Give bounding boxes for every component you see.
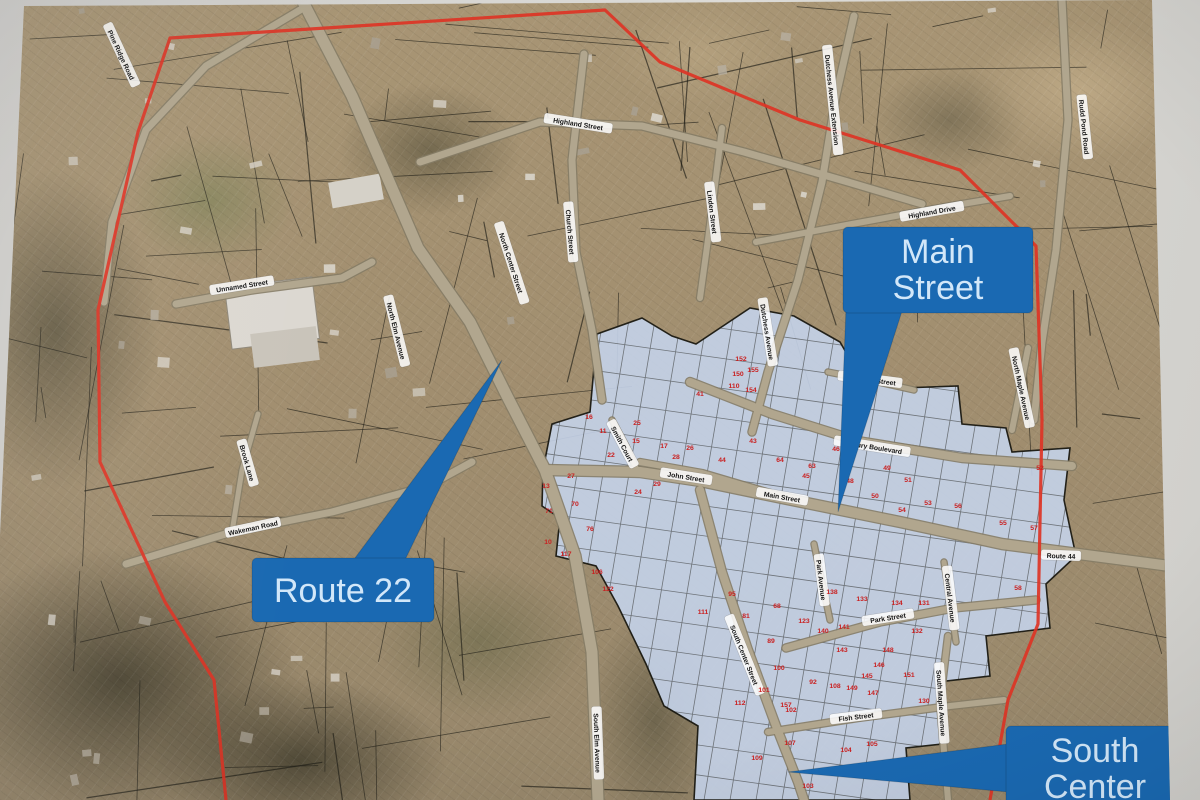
- parcel-number-70: 70: [571, 501, 579, 508]
- parcel-number-102: 102: [785, 707, 797, 714]
- parcel-number-95: 95: [728, 591, 736, 598]
- parcel-number-143: 143: [836, 647, 848, 654]
- street-label-route-44: Route 44: [1041, 549, 1082, 561]
- parcel-number-24: 24: [634, 489, 642, 496]
- parcel-number-134: 134: [891, 600, 903, 607]
- parcel-number-64: 64: [776, 457, 784, 464]
- map-svg: Pine Ridge RoadUnnamed StreetHighland St…: [0, 0, 1200, 800]
- parcel-number-103: 103: [802, 783, 814, 790]
- parcel-number-45: 45: [802, 473, 810, 480]
- parcel-number-146: 146: [873, 662, 885, 669]
- parcel-number-58: 58: [1014, 585, 1022, 592]
- industrial-building: [328, 174, 384, 209]
- callout-text-south-center-1: Center: [1044, 768, 1146, 800]
- parcel-number-55: 55: [999, 520, 1007, 527]
- parcel-number-46: 46: [832, 446, 840, 453]
- map-sheet: Pine Ridge RoadUnnamed StreetHighland St…: [0, 0, 1200, 800]
- parcel-number-16: 16: [585, 414, 593, 421]
- parcel-number-100: 100: [773, 665, 785, 672]
- parcel-number-101: 101: [758, 687, 770, 694]
- parcel-number-49: 49: [883, 465, 891, 472]
- parcel-number-152: 152: [735, 356, 747, 363]
- street-label-south-elm-avenue: South Elm Avenue: [591, 706, 604, 780]
- parcel-number-22: 22: [607, 452, 615, 459]
- parcel-number-68: 68: [773, 603, 781, 610]
- callout-text-main-street-1: Street: [893, 269, 984, 307]
- parcel-number-57: 57: [1030, 525, 1038, 532]
- parcel-number-15: 15: [632, 438, 640, 445]
- parcel-number-89: 89: [767, 638, 775, 645]
- parcel-number-25: 25: [633, 420, 641, 427]
- parcel-number-111: 111: [698, 609, 709, 616]
- callout-text-main-street-0: Main: [901, 233, 975, 271]
- parcel-number-154: 154: [745, 387, 757, 394]
- parcel-number-44: 44: [718, 457, 726, 464]
- parcel-number-150: 150: [732, 371, 744, 378]
- parcel-number-27: 27: [567, 473, 575, 480]
- parcel-number-106: 106: [591, 569, 603, 576]
- parcel-number-117: 117: [561, 551, 572, 558]
- parcel-number-104: 104: [840, 747, 852, 754]
- parcel-number-107: 107: [784, 740, 796, 747]
- parcel-number-43: 43: [749, 438, 757, 445]
- parcel-number-92: 92: [809, 679, 817, 686]
- parcel-number-145: 145: [861, 673, 873, 680]
- svg-text:Pine Ridge Road: Pine Ridge Road: [106, 29, 135, 81]
- parcel-number-151: 151: [903, 672, 915, 679]
- parcel-number-51: 51: [904, 477, 912, 484]
- parcel-number-29: 29: [653, 481, 661, 488]
- parcel-number-105: 105: [866, 741, 878, 748]
- road-church-street: [572, 54, 602, 400]
- street-label-north-elm-avenue: North Elm Avenue: [383, 294, 411, 368]
- parcel-number-109: 109: [751, 755, 763, 762]
- parcel-number-108: 108: [829, 683, 841, 690]
- callout-text-south-center-0: South: [1051, 732, 1140, 770]
- svg-text:Route 44: Route 44: [1046, 553, 1075, 561]
- parcel-number-131: 131: [918, 600, 930, 607]
- parcel-number-140: 140: [817, 628, 829, 635]
- parcel-number-56: 56: [954, 503, 962, 510]
- parcel-number-141: 141: [838, 624, 850, 631]
- parcel-number-148: 148: [882, 647, 894, 654]
- parcel-number-52: 52: [1036, 465, 1044, 472]
- street-label-north-center-street: North Center Street: [493, 220, 530, 305]
- parcel-number-76: 76: [586, 526, 594, 533]
- parcel-number-13: 13: [542, 483, 550, 490]
- parcel-number-112: 112: [735, 700, 746, 707]
- parcel-number-11: 11: [599, 428, 606, 435]
- parcel-number-28: 28: [672, 454, 680, 461]
- parcel-number-63: 63: [808, 463, 816, 470]
- parcel-number-138: 138: [826, 589, 838, 596]
- parcel-number-155: 155: [747, 367, 759, 374]
- parcel-number-122: 122: [602, 586, 614, 593]
- photo-of-parcel-map: Pine Ridge RoadUnnamed StreetHighland St…: [0, 0, 1200, 800]
- parcel-number-50: 50: [871, 493, 879, 500]
- parcel-number-17: 17: [660, 443, 668, 450]
- callout-text-route-22-0: Route 22: [274, 572, 412, 610]
- parcel-number-10: 10: [544, 539, 552, 546]
- parcel-number-123: 123: [798, 618, 810, 625]
- parcel-number-54: 54: [898, 507, 906, 514]
- street-label-rudd-pond-road: Rudd Pond Road: [1076, 94, 1093, 160]
- parcel-number-81: 81: [742, 613, 750, 620]
- parcel-number-26: 26: [686, 445, 694, 452]
- parcel-number-41: 41: [696, 391, 704, 398]
- parcel-number-147: 147: [867, 690, 879, 697]
- parcel-number-130: 130: [918, 698, 930, 705]
- parcel-number-133: 133: [856, 596, 868, 603]
- callout-pointer-route-22: [352, 360, 502, 562]
- parcel-number-110: 110: [729, 383, 740, 390]
- parcel-number-71: 71: [545, 508, 553, 515]
- callout-route-22: Route 22: [252, 360, 502, 622]
- parcel-number-149: 149: [846, 685, 858, 692]
- parcel-number-53: 53: [924, 500, 932, 507]
- parcel-number-132: 132: [911, 628, 923, 635]
